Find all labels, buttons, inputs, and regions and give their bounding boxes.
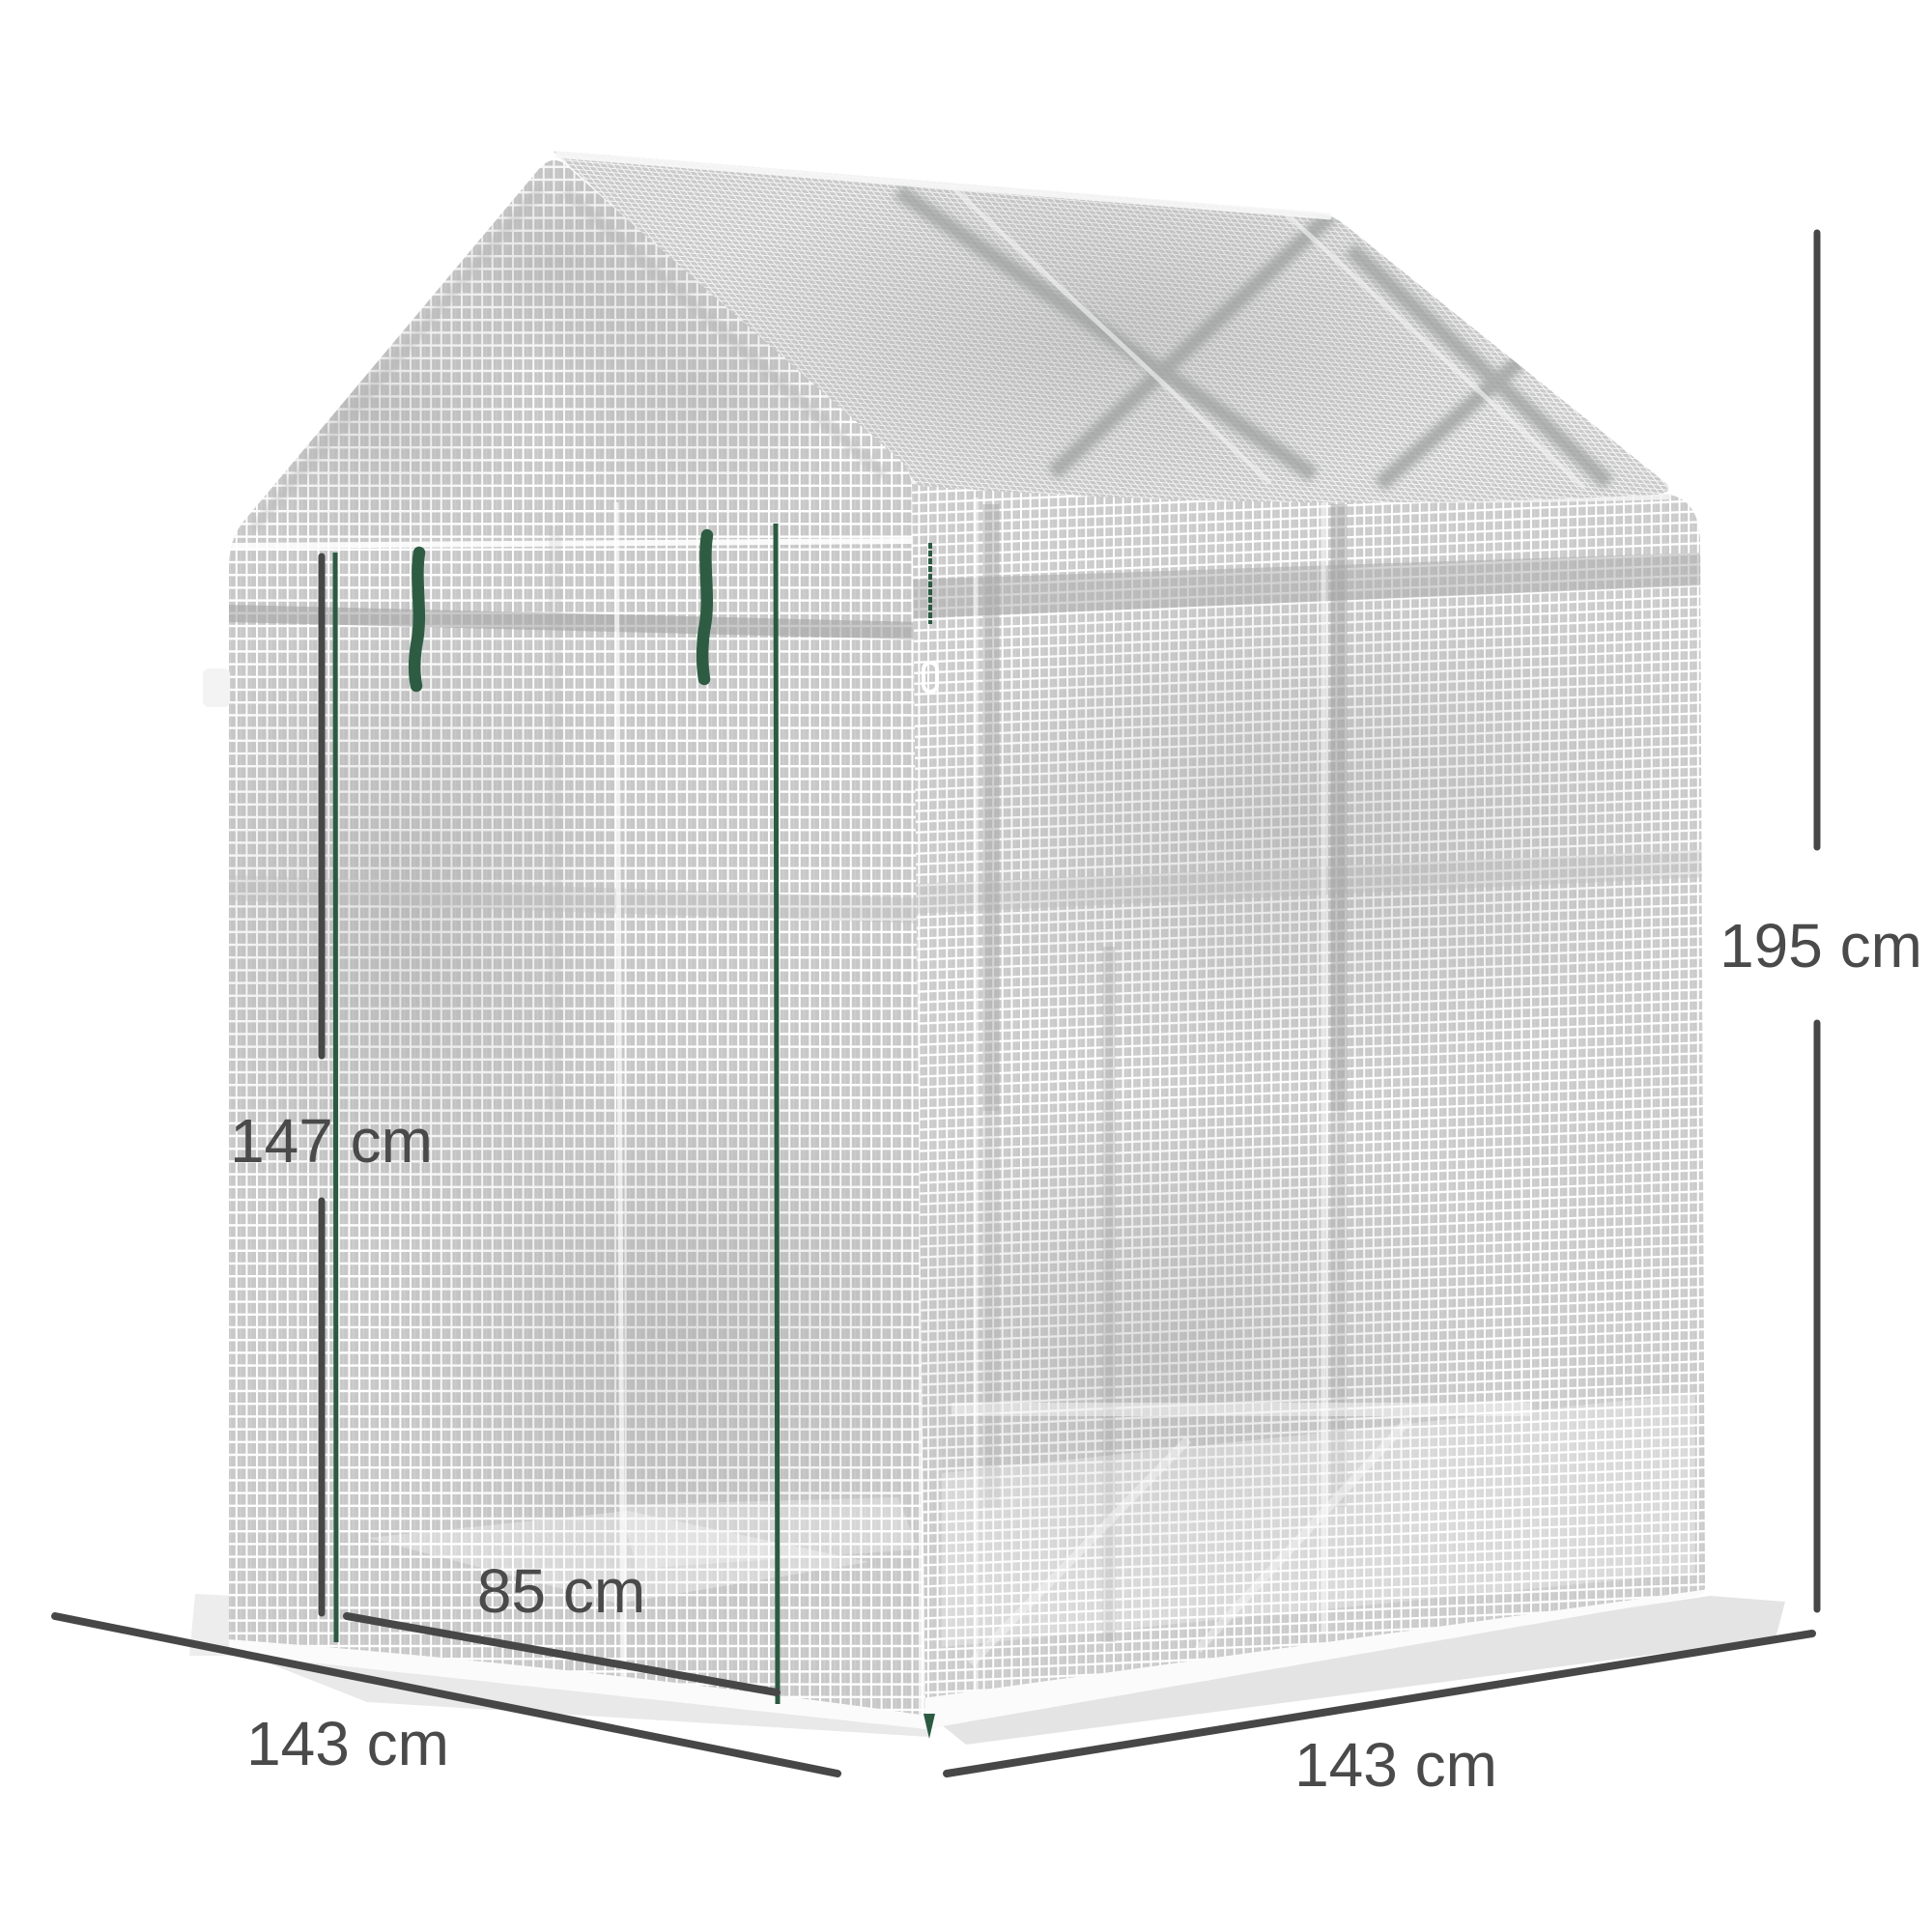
svg-text:195 cm: 195 cm [1719,911,1922,980]
svg-text:147 cm: 147 cm [230,1106,433,1176]
svg-text:143 cm: 143 cm [1294,1730,1497,1800]
svg-text:143 cm: 143 cm [246,1709,449,1778]
svg-text:85 cm: 85 cm [477,1556,645,1626]
